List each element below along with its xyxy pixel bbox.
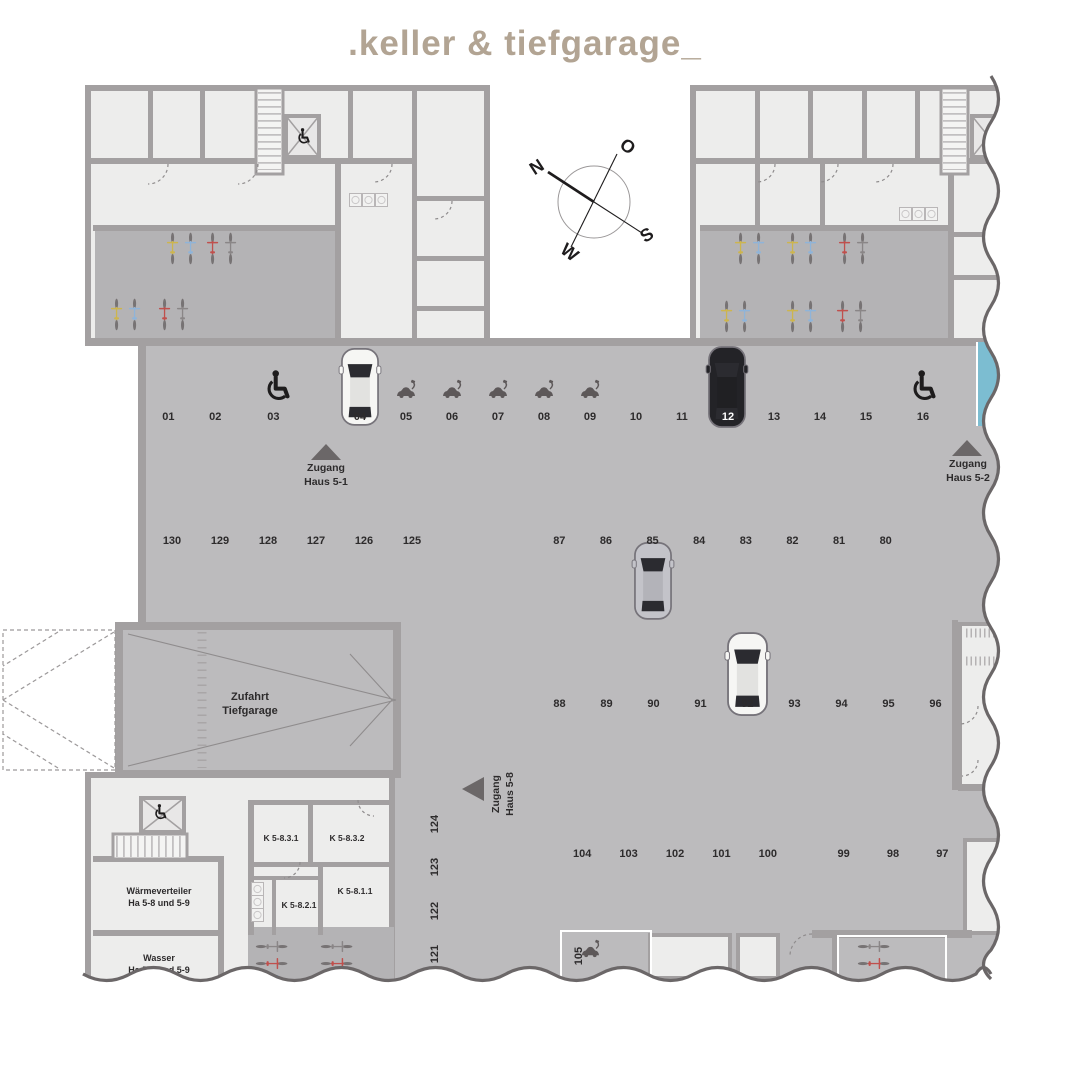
bike-storage-top-left <box>95 231 335 341</box>
room-line: Ha 5-8 und 5-9 <box>128 898 190 908</box>
spot-number: 125 <box>389 535 435 547</box>
spot-number: 81 <box>817 535 862 547</box>
wall <box>808 90 813 160</box>
spot-number: 80 <box>863 535 908 547</box>
wall <box>248 800 394 805</box>
technical-rooms-right <box>958 622 1010 788</box>
spot-number: 11 <box>660 411 704 423</box>
bike-storage-top-right <box>700 231 950 341</box>
room-line: Ha 5-8 und 5-9 <box>128 965 190 975</box>
ramp-line: Tiefgarage <box>222 705 277 717</box>
wall <box>915 90 920 160</box>
spot-number: 102 <box>653 848 697 860</box>
spot-number: 91 <box>678 698 723 710</box>
wall <box>93 856 223 862</box>
entrance-label-haus-5-2: Zugang Haus 5-2 <box>932 458 1004 485</box>
spot-number: 97 <box>919 848 966 860</box>
room-label-k5811: K 5-8.1.1 <box>322 886 388 897</box>
spot-number: 06 <box>430 411 474 423</box>
spot-number: 01 <box>146 411 191 423</box>
bike-storage-bottom-left <box>248 927 394 985</box>
wall <box>948 162 954 342</box>
spot-number: 126 <box>341 535 387 547</box>
ramp-label: Zufahrt Tiefgarage <box>195 690 305 719</box>
spot-number: 84 <box>677 535 722 547</box>
spot-number: 128 <box>245 535 291 547</box>
spot-number: 123 <box>429 852 441 882</box>
spot-number: 90 <box>631 698 676 710</box>
wall <box>696 158 1006 164</box>
spot-number: 03 <box>240 411 307 423</box>
room-line: Wasser <box>143 953 175 963</box>
entrance-line: Zugang <box>307 462 345 474</box>
spot-number: 16 <box>890 411 956 423</box>
wall <box>318 862 323 935</box>
wall <box>248 800 254 935</box>
room-right-97 <box>963 838 1008 935</box>
wall <box>85 338 1008 346</box>
wall <box>954 232 1008 237</box>
spot-number: 09 <box>568 411 612 423</box>
wall <box>755 164 760 228</box>
wall <box>700 225 952 231</box>
wall <box>200 90 205 162</box>
spot-number: 127 <box>293 535 339 547</box>
spot-number: 121 <box>429 939 441 969</box>
spot-number: 83 <box>724 535 769 547</box>
spot-number: 98 <box>869 848 916 860</box>
spot-number: 14 <box>798 411 842 423</box>
spot-number: 122 <box>429 896 441 926</box>
spot-number: 02 <box>193 411 238 423</box>
wall <box>412 88 417 343</box>
room-bottom-1 <box>648 933 732 980</box>
wall <box>958 785 1010 791</box>
wall <box>90 158 415 164</box>
spot-number: 103 <box>606 848 650 860</box>
room-label-k5831: K 5-8.3.1 <box>252 833 310 844</box>
spot-number: 89 <box>584 698 629 710</box>
room-line: Wärmeverteiler <box>126 886 191 896</box>
highlighted-parking-spot <box>976 342 1012 426</box>
parking-spot-105: 105 <box>560 930 652 980</box>
spot-number: 10 <box>614 411 658 423</box>
spot-number: 129 <box>197 535 243 547</box>
spot-number: 94 <box>819 698 864 710</box>
wall <box>138 340 146 628</box>
spot-number: 124 <box>429 809 441 839</box>
compass-east-label: O <box>616 134 639 158</box>
compass-north-label: N <box>526 155 548 179</box>
entrance-line: Haus 5-8 <box>504 762 518 826</box>
entrance-line: Haus 5-1 <box>304 476 348 488</box>
spot-number: 100 <box>746 848 790 860</box>
entrance-line: Zugang <box>949 458 987 470</box>
entrance-line: Haus 5-2 <box>946 472 990 484</box>
spot-number: 85 <box>630 535 675 547</box>
spot-number: 88 <box>537 698 582 710</box>
wall <box>832 932 838 986</box>
spot-number: 05 <box>384 411 428 423</box>
spot-number: 12 <box>706 411 750 423</box>
spot-number: 86 <box>584 535 629 547</box>
floor-plan: .keller & tiefgarage_ <box>0 0 1080 1080</box>
wall <box>412 306 490 311</box>
spot-number: 15 <box>844 411 888 423</box>
wall <box>148 90 153 162</box>
spot-number: 82 <box>770 535 815 547</box>
spot-number: 07 <box>476 411 520 423</box>
wall <box>412 256 490 261</box>
spot-number: 104 <box>560 848 604 860</box>
wall <box>250 876 322 880</box>
room-label-k5821: K 5-8.2.1 <box>268 900 330 911</box>
room-bottom-2 <box>736 933 780 980</box>
spot-number: 92 <box>725 698 770 710</box>
spot-number: 105 <box>573 941 585 971</box>
spot-number: 99 <box>820 848 867 860</box>
spot-number: 87 <box>537 535 582 547</box>
spot-number: 101 <box>699 848 743 860</box>
cut-mask-corner <box>985 974 1080 1080</box>
wall <box>93 225 338 231</box>
wall <box>93 930 223 936</box>
room-label-waermeverteiler: Wärmeverteiler Ha 5-8 und 5-9 <box>100 886 218 909</box>
wall <box>755 90 760 160</box>
wall <box>954 275 1008 280</box>
wall <box>335 162 341 342</box>
compass-west-label: W <box>557 239 583 265</box>
room-label-wasser: Wasser Ha 5-8 und 5-9 <box>100 953 218 976</box>
room-label-k5832: K 5-8.3.2 <box>316 833 378 844</box>
compass-south-label: S <box>636 223 657 246</box>
wall <box>862 90 867 160</box>
spot-number: 96 <box>913 698 958 710</box>
entrance-label-haus-5-1: Zugang Haus 5-1 <box>290 462 362 489</box>
page-title: .keller & tiefgarage_ <box>0 24 1050 64</box>
spot-number: 130 <box>149 535 195 547</box>
spot-number: 13 <box>752 411 796 423</box>
ramp-marking <box>3 630 115 770</box>
compass-icon: N O S W <box>526 134 657 265</box>
entrance-label-haus-5-8: Zugang Haus 5-8 <box>478 762 530 826</box>
entrance-line: Zugang <box>490 762 504 826</box>
wall <box>412 196 490 201</box>
spot-number: 93 <box>772 698 817 710</box>
wall <box>820 164 825 228</box>
wall <box>348 90 353 162</box>
ramp-line: Zufahrt <box>231 691 269 703</box>
spot-number: 08 <box>522 411 566 423</box>
spot-number: 95 <box>866 698 911 710</box>
wall <box>218 856 224 986</box>
spot-number: 04 <box>338 411 382 423</box>
